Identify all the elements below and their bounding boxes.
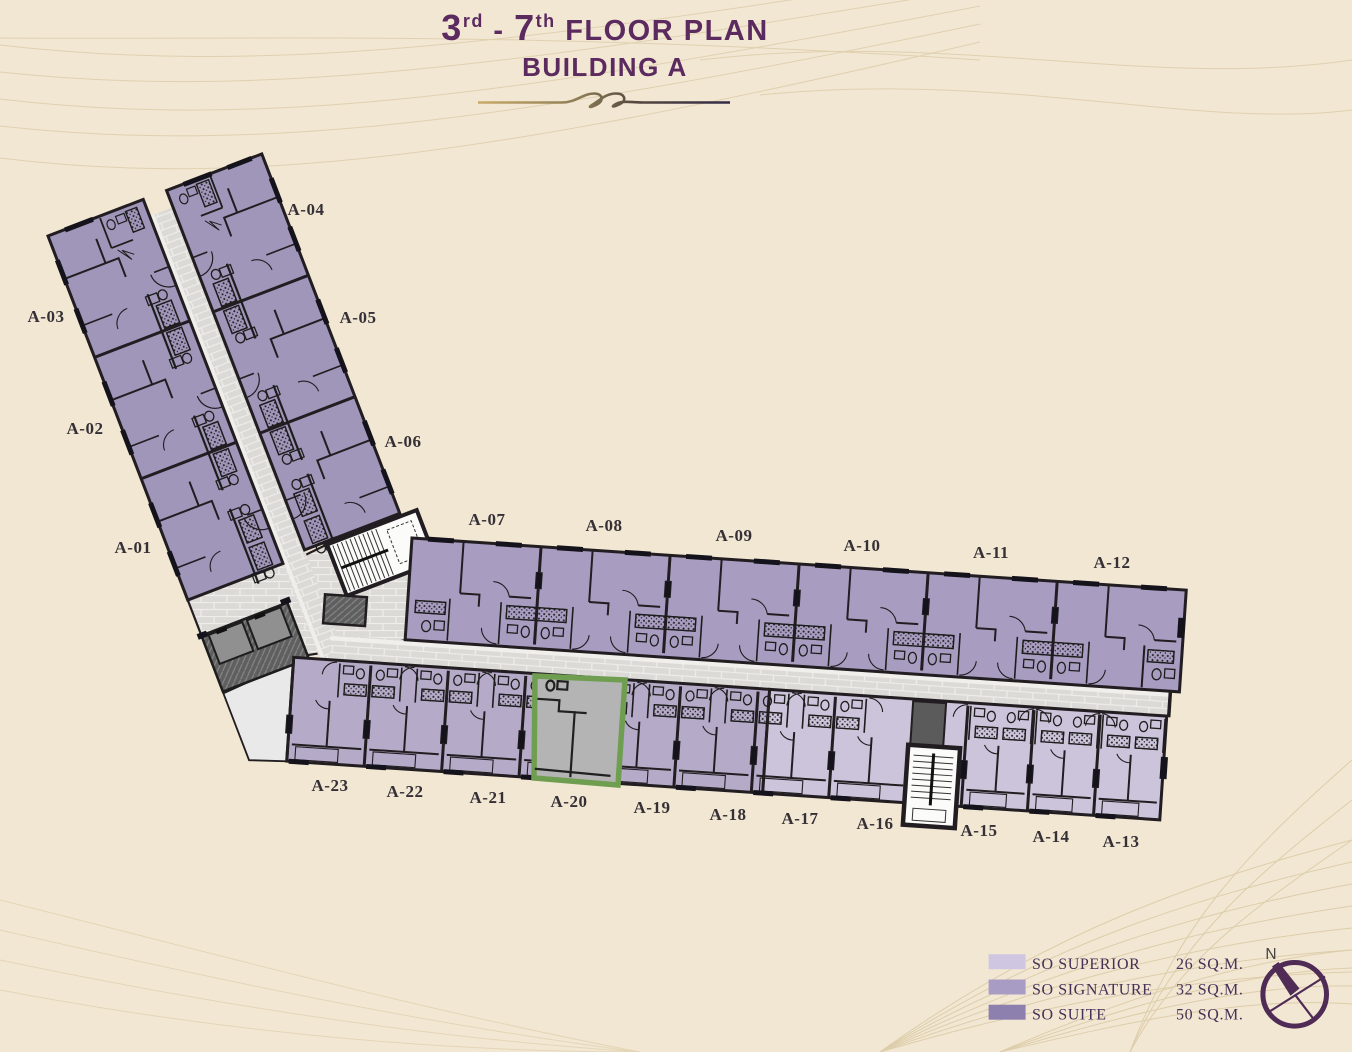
svg-text:SO SUPERIOR: SO SUPERIOR [1032,956,1140,973]
svg-text:32 SQ.M.: 32 SQ.M. [1176,982,1243,999]
svg-text:A-11: A-11 [973,543,1009,562]
svg-text:A-04: A-04 [288,200,325,219]
svg-text:A-12: A-12 [1094,553,1131,572]
svg-text:A-06: A-06 [385,432,422,451]
svg-text:A-18: A-18 [710,805,747,824]
svg-text:A-09: A-09 [716,526,753,545]
svg-text:A-22: A-22 [387,782,424,801]
svg-text:A-19: A-19 [634,798,671,817]
svg-text:A-05: A-05 [340,308,377,327]
svg-text:SO SUITE: SO SUITE [1032,1007,1107,1024]
svg-text:A-20: A-20 [551,792,588,811]
svg-text:A-21: A-21 [470,788,507,807]
svg-text:A-15: A-15 [961,821,998,840]
svg-text:A-13: A-13 [1103,832,1140,851]
svg-text:26 SQ.M.: 26 SQ.M. [1176,956,1243,973]
svg-text:A-08: A-08 [586,516,623,535]
svg-text:N: N [1265,946,1276,963]
svg-text:A-16: A-16 [857,814,894,833]
svg-text:A-03: A-03 [28,307,65,326]
svg-text:A-02: A-02 [67,419,104,438]
svg-text:A-10: A-10 [844,536,881,555]
svg-text:A-07: A-07 [469,510,506,529]
svg-text:SO SIGNATURE: SO SIGNATURE [1032,982,1153,999]
svg-text:50 SQ.M.: 50 SQ.M. [1176,1007,1243,1024]
svg-text:BUILDING A: BUILDING A [522,52,688,82]
svg-text:A-23: A-23 [312,776,349,795]
svg-text:A-17: A-17 [782,809,819,828]
svg-text:A-14: A-14 [1033,827,1070,846]
svg-text:A-01: A-01 [115,538,152,557]
